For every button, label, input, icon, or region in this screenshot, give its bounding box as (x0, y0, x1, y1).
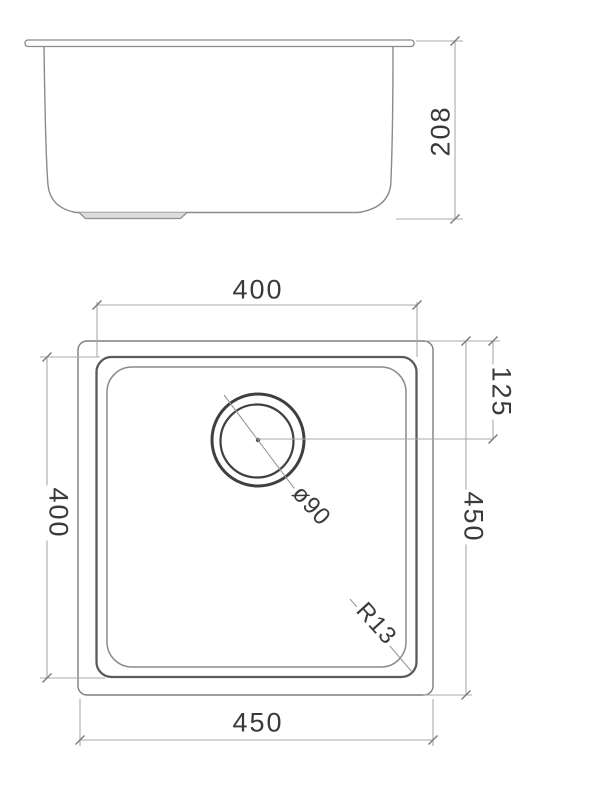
drain-offset-dimension-label: 125 (488, 364, 515, 419)
bowl-profile (44, 47, 393, 213)
drain-boss-profile (79, 213, 187, 219)
sink-technical-drawing: 208 400 400 450 125 450 ø90 R13 (0, 0, 605, 800)
overall-depth-dimension-label: 450 (460, 489, 487, 544)
plan-view (40, 301, 500, 747)
depth-dimension-label: 208 (428, 103, 455, 158)
overall-width-dimension-label: 450 (230, 710, 285, 737)
bowl-width-dimension-label: 400 (230, 277, 285, 304)
bowl-depth-dimension-label: 400 (45, 485, 72, 540)
side-elevation-view (25, 37, 463, 224)
rim-profile (25, 40, 414, 47)
bowl-width-dimension (93, 301, 422, 358)
